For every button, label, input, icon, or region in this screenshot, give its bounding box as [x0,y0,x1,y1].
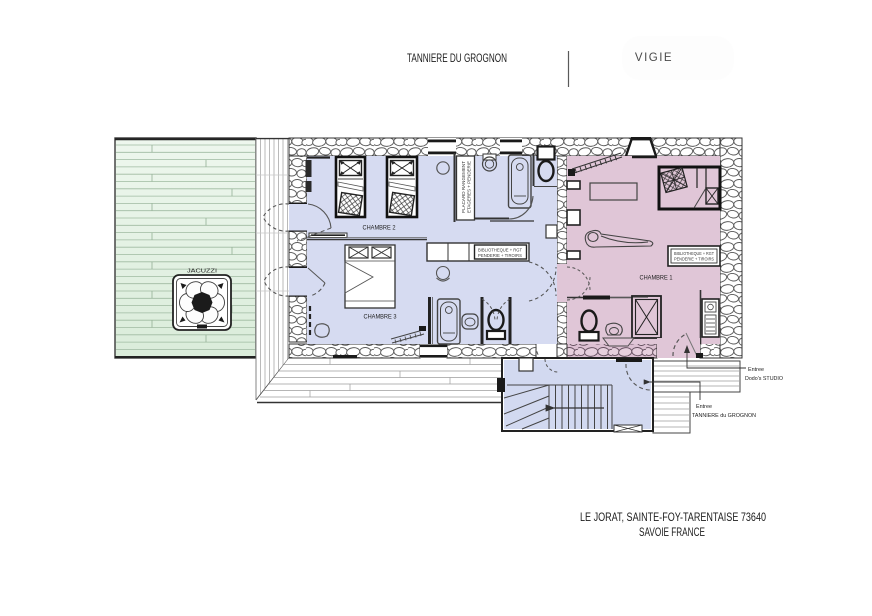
svg-text:PENDERIE + TIROIRS: PENDERIE + TIROIRS [674,257,714,262]
svg-text:CHAMBRE 3: CHAMBRE 3 [364,314,398,321]
svg-text:Entree: Entree [748,367,764,373]
svg-text:TANNIERE du GROGNON: TANNIERE du GROGNON [692,413,756,419]
svg-text:SAVOIE FRANCE: SAVOIE FRANCE [639,525,705,539]
svg-text:TANNIERE DU GROGNON: TANNIERE DU GROGNON [407,51,507,65]
svg-text:LE JORAT, SAINTE-FOY-TARENTAIS: LE JORAT, SAINTE-FOY-TARENTAISE 73640 [580,510,766,524]
svg-text:CHAMBRE 1: CHAMBRE 1 [640,275,674,282]
svg-text:PLACARD RANGEMENT: PLACARD RANGEMENT [461,161,466,213]
svg-text:ETAGERES + PENDERIE: ETAGERES + PENDERIE [467,161,472,213]
svg-text:BIBLIOTHEQUE + RGT: BIBLIOTHEQUE + RGT [674,251,714,256]
svg-text:Dodo's STUDIO: Dodo's STUDIO [745,376,783,382]
svg-text:PENDERIE + TIROIRS: PENDERIE + TIROIRS [478,253,522,258]
svg-text:CHAMBRE 2: CHAMBRE 2 [363,225,397,232]
svg-text:BIBLIOTHEQUE + RGT: BIBLIOTHEQUE + RGT [478,248,522,253]
svg-text:VIGIE: VIGIE [635,52,673,64]
svg-text:Entree: Entree [696,404,712,410]
svg-text:JACUZZI: JACUZZI [187,269,218,275]
